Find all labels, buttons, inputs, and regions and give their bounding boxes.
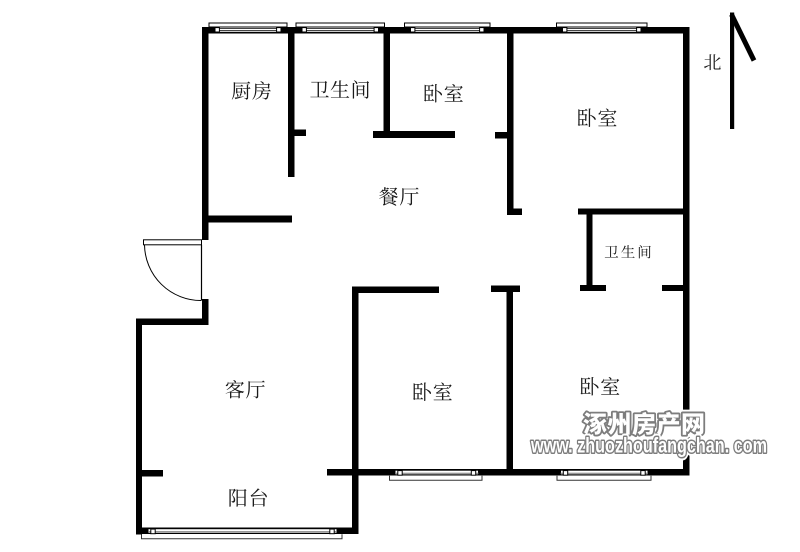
svg-text:www. zhuozhoufangchan. com: www. zhuozhoufangchan. com bbox=[530, 435, 767, 458]
